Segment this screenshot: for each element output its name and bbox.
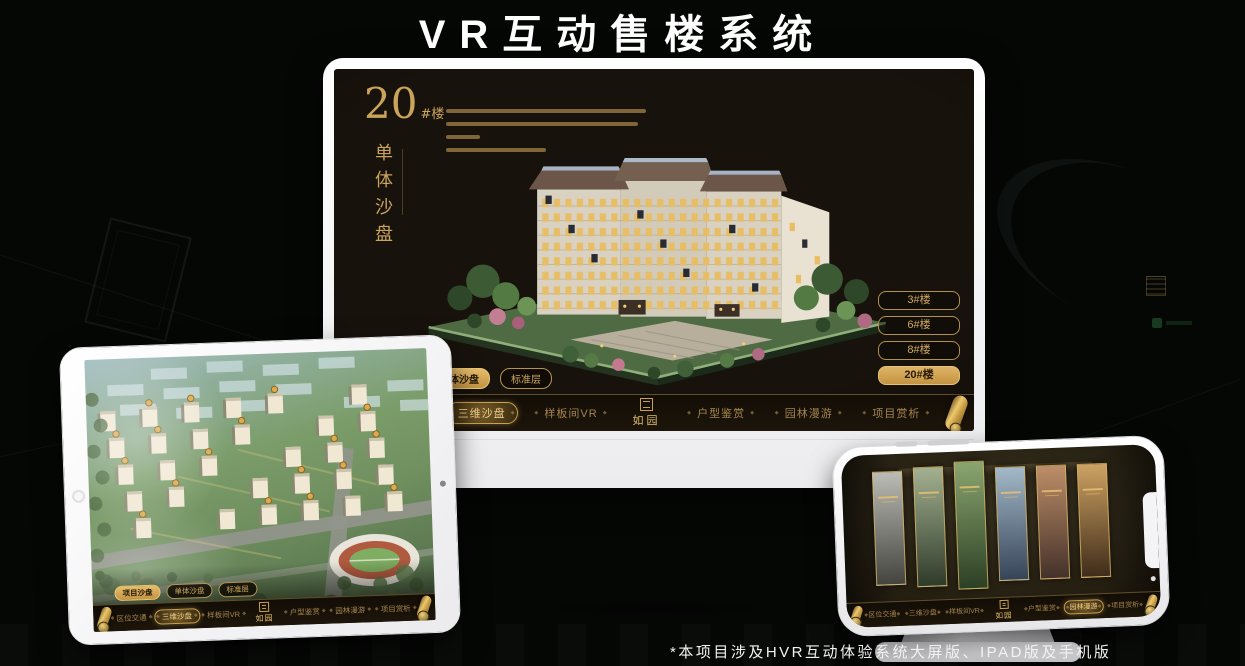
logo-text: 如园 — [995, 609, 1012, 621]
panorama-gallery — [871, 456, 1111, 593]
nav-item[interactable]: 三维沙盘 — [154, 608, 200, 625]
nav-item[interactable]: 三维沙盘 — [904, 606, 942, 619]
ruyuan-seal-icon — [259, 602, 269, 612]
nav-item[interactable]: 区位交通 — [863, 608, 901, 621]
monitor-shadow — [536, 600, 776, 618]
ruyuan-logo[interactable]: 如园 — [987, 599, 1021, 621]
logo-text: 如园 — [633, 412, 661, 428]
gallery-panel[interactable] — [953, 461, 988, 590]
floor-button[interactable]: 8#楼 — [878, 341, 960, 360]
view-tab[interactable]: 项目沙盘 — [114, 585, 160, 602]
block-subtitle: 单体沙盘 — [369, 143, 395, 251]
phone-notch — [1142, 492, 1159, 568]
floor-button-group: 3#楼6#楼8#楼20#楼 — [878, 291, 960, 385]
ruyuan-logo[interactable]: 如园 — [247, 601, 282, 624]
ruyuan-logo[interactable]: 如园 — [625, 398, 669, 428]
gallery-panel[interactable] — [994, 466, 1028, 581]
floor-button[interactable]: 20#楼 — [878, 366, 960, 385]
footnote-text: *本项目涉及HVR互动体验系统大屏版、IPAD版及手机版 — [670, 641, 1111, 662]
nav-item[interactable]: 园林漫游 — [774, 403, 844, 423]
view-tab[interactable]: 标准层 — [218, 581, 257, 597]
gallery-panel[interactable] — [912, 466, 947, 587]
nav-item[interactable]: 样板间VR — [200, 607, 247, 622]
gallery-panel[interactable] — [1076, 463, 1110, 578]
phone-device: 区位交通三维沙盘样板间VR 如园 户型鉴赏园林漫游项目赏析 — [831, 435, 1170, 638]
nav-item[interactable]: 样板间VR — [533, 403, 608, 423]
block-number-suffix: #楼 — [420, 107, 444, 122]
nav-item[interactable]: 项目赏析 — [861, 403, 931, 423]
building-block — [529, 158, 830, 323]
nav-item[interactable]: 园林漫游 — [1063, 599, 1104, 615]
gallery-panel[interactable] — [1035, 464, 1069, 579]
nav-item[interactable]: 园林漫游 — [328, 603, 372, 618]
tree-cluster-left — [447, 264, 536, 329]
bg-river-curve — [971, 124, 1245, 365]
page-title: VR互动售楼系统 — [0, 2, 1245, 60]
nav-item[interactable]: 三维沙盘 — [446, 402, 518, 424]
nav-item[interactable]: 区位交通 — [109, 610, 153, 625]
floor-button[interactable]: 3#楼 — [878, 291, 960, 310]
ruyuan-seal-icon — [640, 398, 653, 411]
promo-stage: VR互动售楼系统 — [0, 0, 1245, 666]
bg-grid-chip — [1146, 276, 1166, 296]
nav-item[interactable]: 户型鉴赏 — [686, 403, 756, 423]
block-number: 20 — [364, 79, 417, 128]
block-tagline-rule — [402, 149, 403, 215]
ruyuan-seal-icon — [999, 599, 1008, 608]
bg-green-logo-chip — [1152, 318, 1162, 328]
phone-screen: 区位交通三维沙盘样板间VR 如园 户型鉴赏园林漫游项目赏析 — [841, 444, 1161, 628]
tablet-device: 项目沙盘单体沙盘标准层 区位交通三维沙盘样板间VR 如园 户型鉴赏园林漫游项目赏… — [59, 334, 461, 645]
block-title: 20#楼 — [364, 83, 444, 125]
gallery-panel[interactable] — [872, 471, 906, 586]
nav-item[interactable]: 项目赏析 — [1106, 599, 1144, 612]
nav-item[interactable]: 户型鉴赏 — [283, 604, 327, 619]
floor-button[interactable]: 6#楼 — [878, 316, 960, 335]
bg-map-sign — [84, 217, 192, 342]
tablet-screen: 项目沙盘单体沙盘标准层 区位交通三维沙盘样板间VR 如园 户型鉴赏园林漫游项目赏… — [84, 348, 435, 632]
view-tab[interactable]: 单体沙盘 — [166, 583, 212, 600]
view-tab[interactable]: 标准层 — [500, 368, 552, 389]
nav-item[interactable]: 户型鉴赏 — [1023, 602, 1061, 615]
phone-camera-icon — [1151, 576, 1156, 581]
description-text-lines — [446, 109, 646, 161]
logo-text: 如园 — [255, 613, 273, 625]
phone-volume-button[interactable] — [895, 441, 917, 447]
nav-item[interactable]: 项目赏析 — [373, 601, 417, 616]
nav-item[interactable]: 样板间VR — [944, 605, 985, 619]
